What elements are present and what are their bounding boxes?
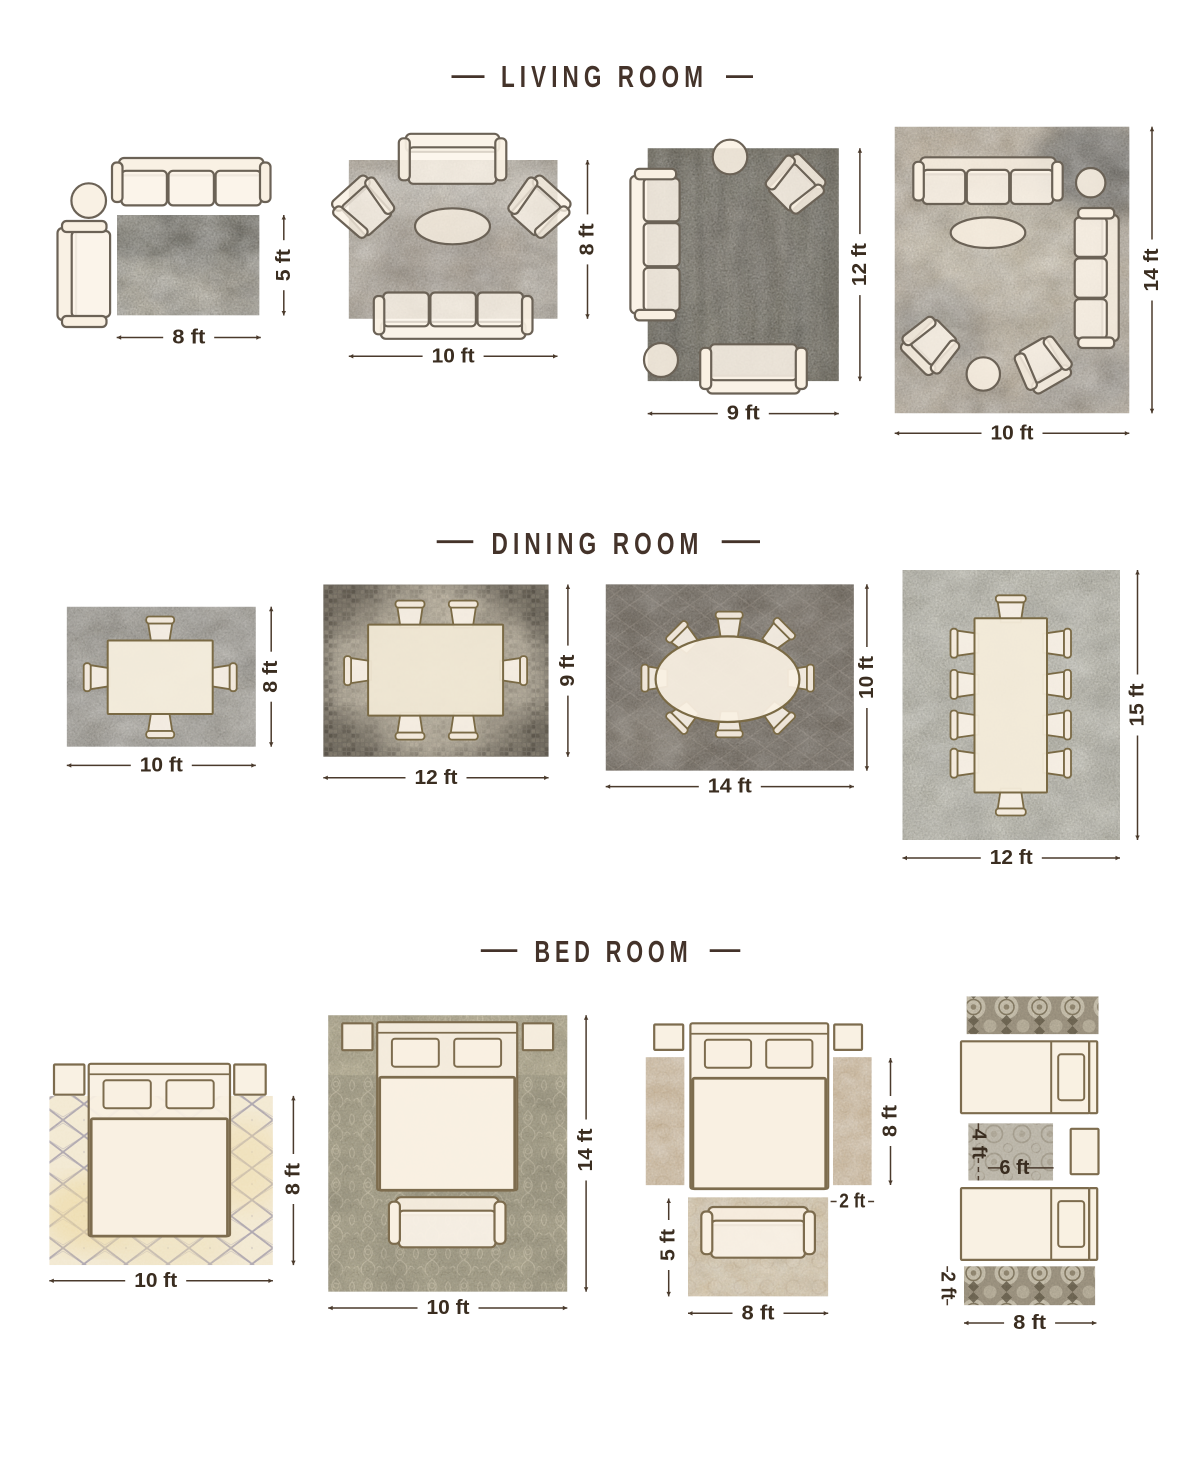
svg-text:8 ft: 8 ft (742, 1302, 775, 1324)
svg-text:12 ft: 12 ft (990, 847, 1033, 869)
svg-text:8 ft: 8 ft (577, 223, 599, 255)
svg-text:10 ft: 10 ft (134, 1270, 177, 1292)
svg-text:DINING ROOM: DINING ROOM (492, 526, 704, 561)
svg-text:8 ft: 8 ft (260, 660, 282, 692)
svg-text:2 ft: 2 ft (839, 1191, 865, 1213)
svg-text:12 ft: 12 ft (415, 767, 458, 789)
svg-text:4 ft: 4 ft (967, 1129, 989, 1159)
svg-text:5 ft: 5 ft (273, 249, 295, 281)
svg-text:10 ft: 10 ft (991, 422, 1034, 444)
svg-text:2 ft: 2 ft (936, 1272, 958, 1300)
svg-text:10 ft: 10 ft (856, 656, 878, 699)
svg-text:BED ROOM: BED ROOM (535, 934, 693, 969)
svg-text:14 ft: 14 ft (708, 776, 752, 798)
svg-text:9 ft: 9 ft (727, 403, 760, 425)
svg-text:8 ft: 8 ft (172, 327, 205, 349)
svg-text:5 ft: 5 ft (658, 1229, 680, 1261)
svg-text:10 ft: 10 ft (432, 345, 475, 367)
svg-text:10 ft: 10 ft (140, 754, 183, 776)
svg-text:8 ft: 8 ft (1013, 1312, 1046, 1334)
svg-text:10 ft: 10 ft (427, 1297, 470, 1319)
svg-text:8 ft: 8 ft (880, 1105, 902, 1137)
svg-text:12 ft: 12 ft (849, 243, 871, 286)
svg-text:15 ft: 15 ft (1127, 683, 1149, 726)
svg-text:14 ft: 14 ft (575, 1128, 597, 1171)
svg-text:14 ft: 14 ft (1141, 248, 1163, 291)
svg-text:6 ft: 6 ft (999, 1157, 1029, 1179)
svg-text:LIVING ROOM: LIVING ROOM (501, 59, 708, 94)
svg-text:8 ft: 8 ft (282, 1163, 304, 1195)
svg-text:9 ft: 9 ft (557, 654, 579, 686)
